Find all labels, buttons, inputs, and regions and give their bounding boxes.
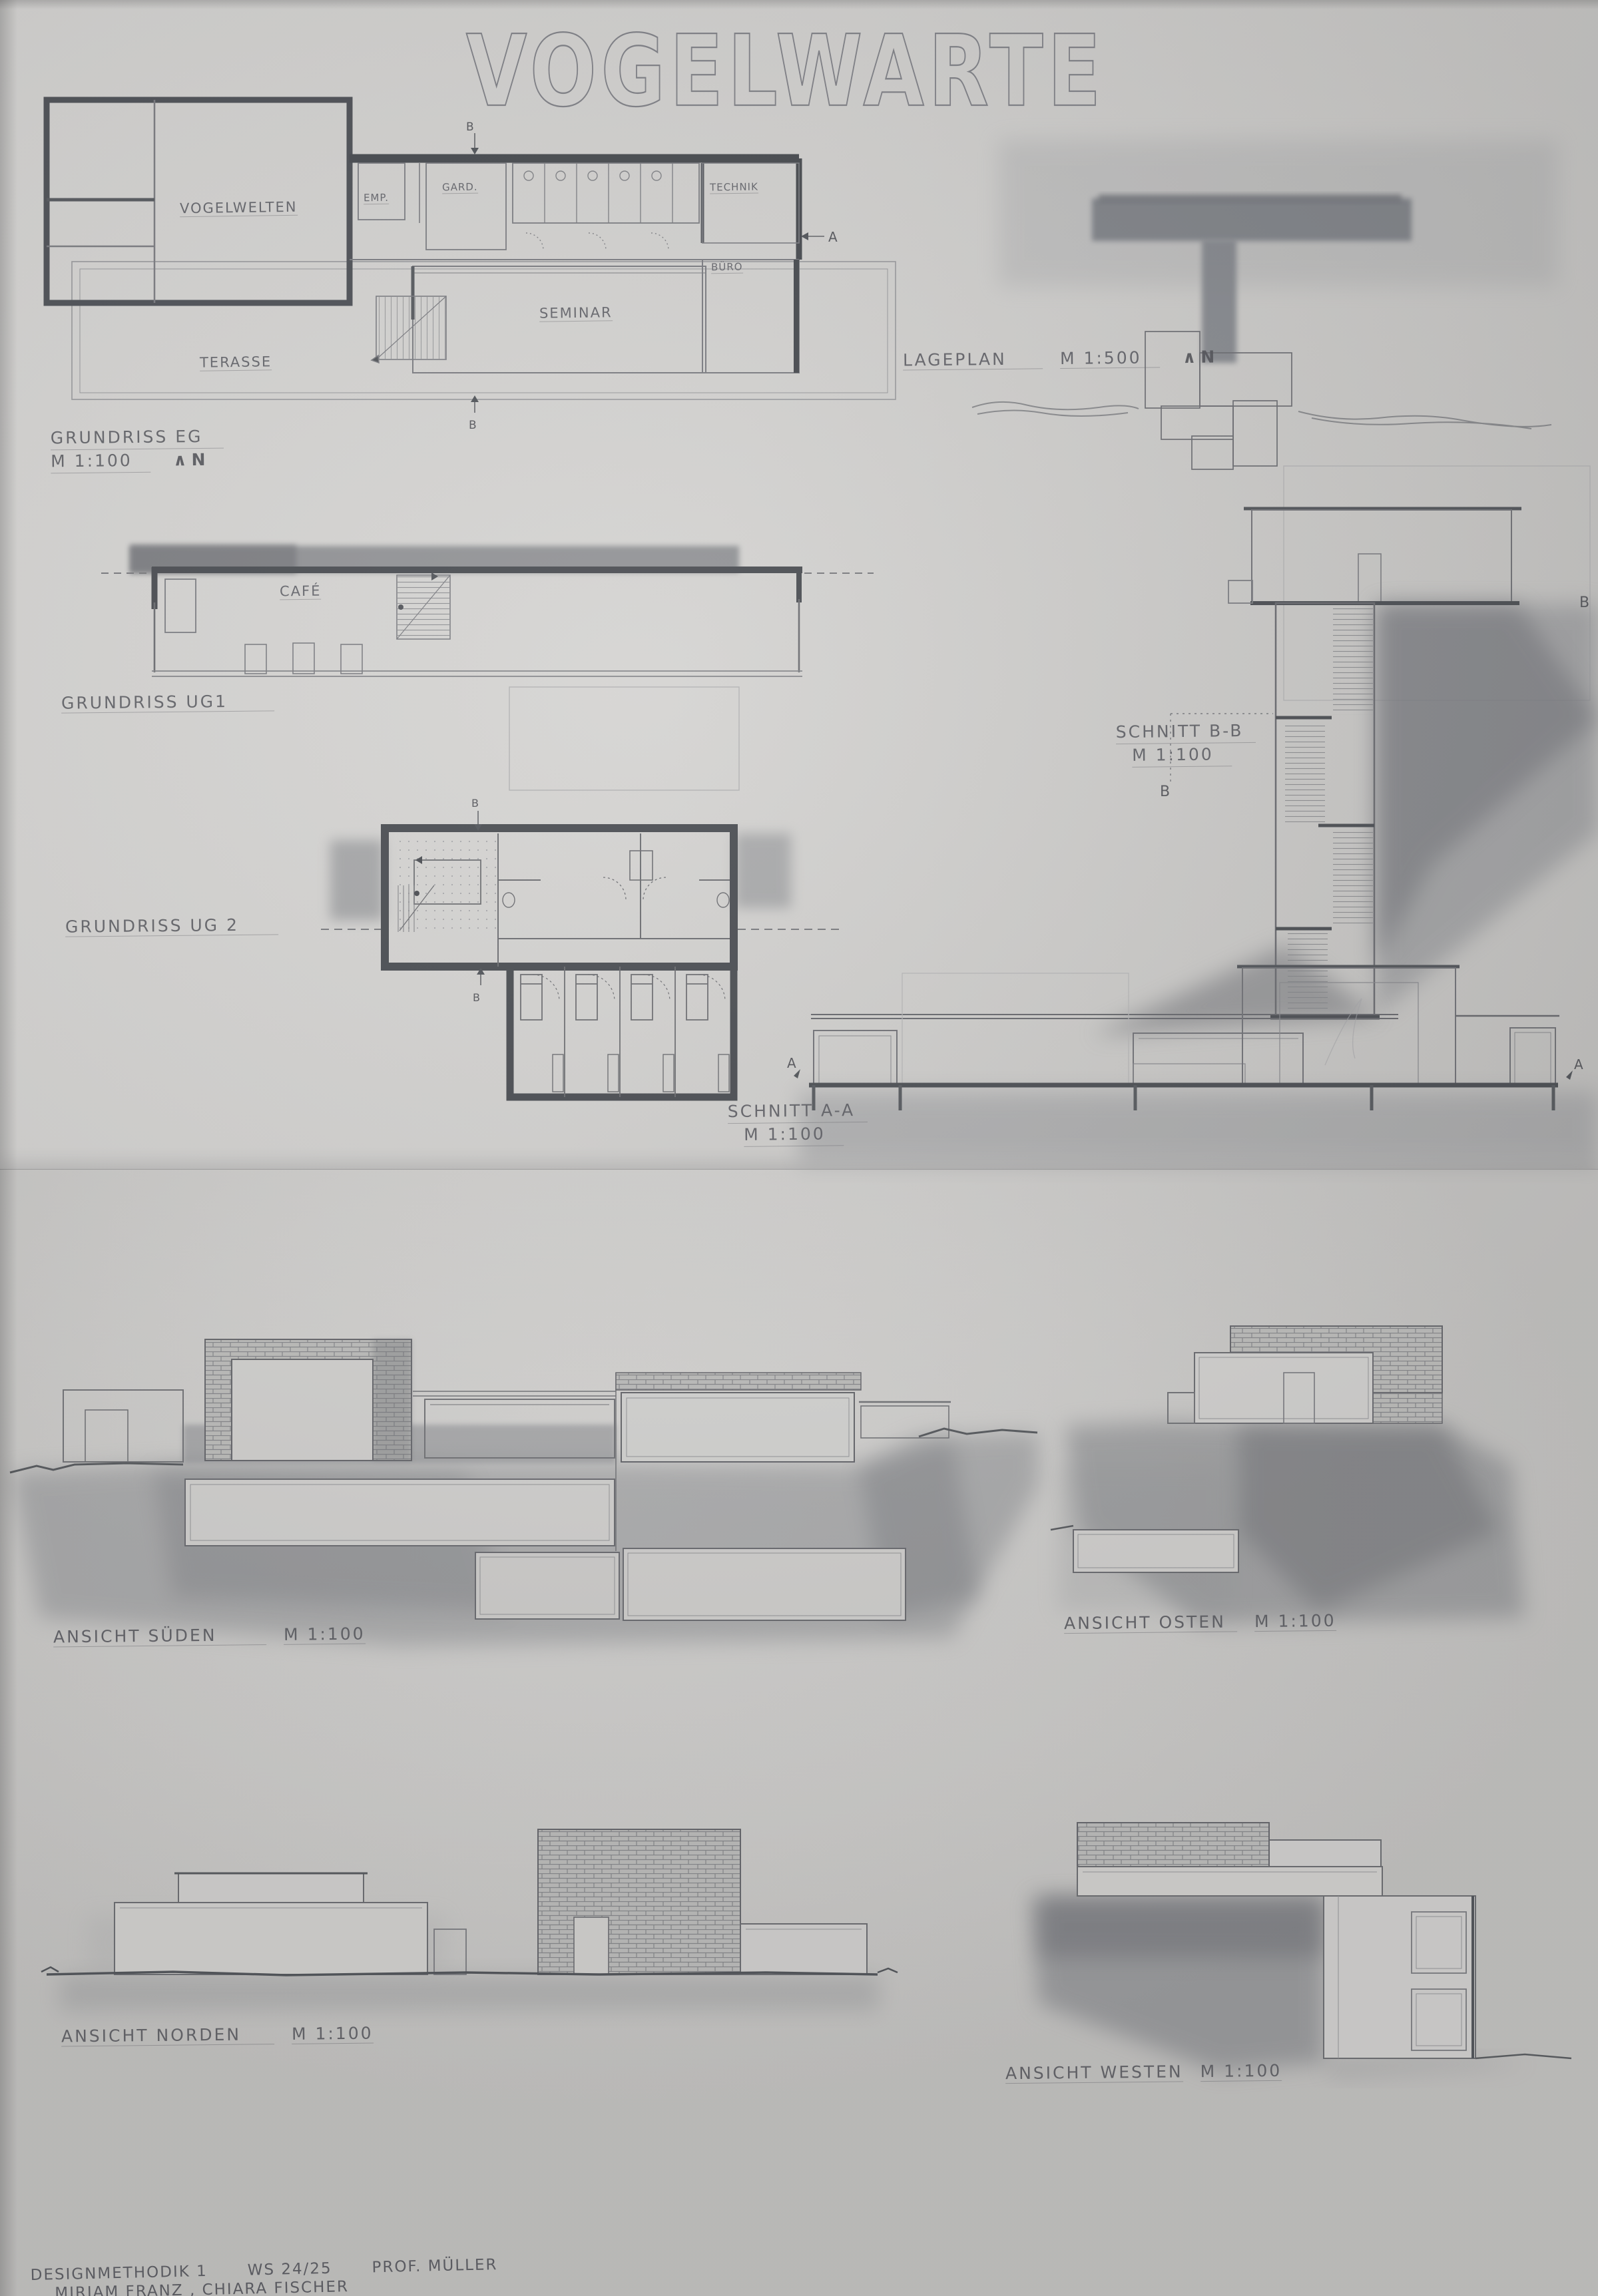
schnitt-aa-drawing: A A [786,945,1598,1169]
ansicht-norden-drawing [40,1791,932,2057]
room-label-gard: GARD. [442,181,478,194]
aa-section-markers: A A [787,1055,1583,1080]
ug2-interior [498,833,730,967]
ug1-stair [397,573,450,639]
ost-white-slab [1051,1526,1238,1572]
sued-far-right-box [859,1402,951,1438]
credits-semester: WS 24/25 [247,2260,332,2279]
svg-text:B: B [466,120,474,134]
ug1-walls [152,567,802,676]
eg-terrace-outline [72,262,896,399]
room-label-cafe: CAFÉ [280,583,322,600]
north-arrow: ∧N [173,450,208,470]
eg-section-markers: A B B [466,120,838,432]
svg-text:B: B [473,991,480,1004]
label-ansicht-norden: ANSICHT NORDENM 1:100 [61,2024,374,2047]
label-grundriss-eg: GRUNDRISS EG M 1:100∧N [51,425,224,474]
label-lageplan: LAGEPLANM 1:500∧N [903,347,1217,371]
label-ansicht-osten: ANSICHT OSTENM 1:100 [1064,1611,1336,1634]
ansicht-sueden-drawing [0,1298,1039,1671]
bb-upper-storey [1228,509,1521,603]
sued-right-block [616,1373,861,1462]
svg-text:B: B [471,797,479,809]
ost-ground-mass [1059,1422,1525,1624]
sued-brick-tower [205,1339,411,1461]
sued-left-box [63,1390,183,1462]
ug2-bedrooms [521,967,729,1097]
room-label-technik: TECHNIK [710,180,758,194]
label-schnitt-aa: SCHNITT A-A M 1:100 [728,1099,868,1147]
label-ansicht-westen: ANSICHT WESTENM 1:100 [1005,2061,1282,2084]
label-grundriss-ug2: GRUNDRISS UG 2 [65,915,278,937]
ug1-tables [245,643,362,674]
svg-text:A: A [828,229,838,245]
room-label-vogelwelten: VOGELWELTEN [180,199,298,217]
label-schnitt-bb: SCHNITT B-B M 1:100 [1116,720,1256,768]
ug1-ghost-volume [509,687,739,790]
north-arrow-icon: ∧ [173,450,189,469]
lageplan-drawing [959,107,1598,386]
ug1-counter [165,579,196,632]
room-label-seminar: SEMINAR [539,304,613,322]
grundriss-ug2-drawing: B B [320,786,846,1138]
ost-building [1168,1326,1442,1423]
ansicht-osten-drawing [1039,1298,1598,1651]
aa-ground-smudge [799,1092,1598,1164]
grundriss-eg-drawing: A B B [27,80,906,559]
svg-text:A: A [787,1055,796,1071]
presentation-board: VOGELWARTE [0,0,1598,2296]
svg-text:B: B [1160,784,1170,800]
ug2-stair [393,837,498,932]
nord-ground-smudge [60,1976,879,2010]
room-label-buero: BÜRO [711,261,743,274]
nord-building [115,1829,867,1974]
svg-text:B: B [469,419,477,432]
aa-structures [811,967,1559,1085]
eg-partitions [47,100,799,303]
north-arrow-icon: ∧ [1183,347,1198,367]
west-groundline [1475,2054,1571,2058]
label-grundriss-ug1: GRUNDRISS UG1 [61,691,274,713]
credits-professor: PROF. MÜLLER [372,2256,497,2276]
eg-wc-fixtures [524,171,668,250]
room-label-terasse: TERASSE [200,353,272,371]
room-label-emp: EMP. [364,192,389,205]
svg-text:A: A [1574,1056,1583,1072]
label-ansicht-sueden: ANSICHT SÜDENM 1:100 [53,1624,366,1648]
north-arrow: ∧N [1183,347,1217,367]
grundriss-ug1-drawing [100,519,886,805]
eg-stair [372,296,446,363]
svg-text:B: B [1579,594,1589,611]
ug2-lower-walls [510,967,734,1097]
